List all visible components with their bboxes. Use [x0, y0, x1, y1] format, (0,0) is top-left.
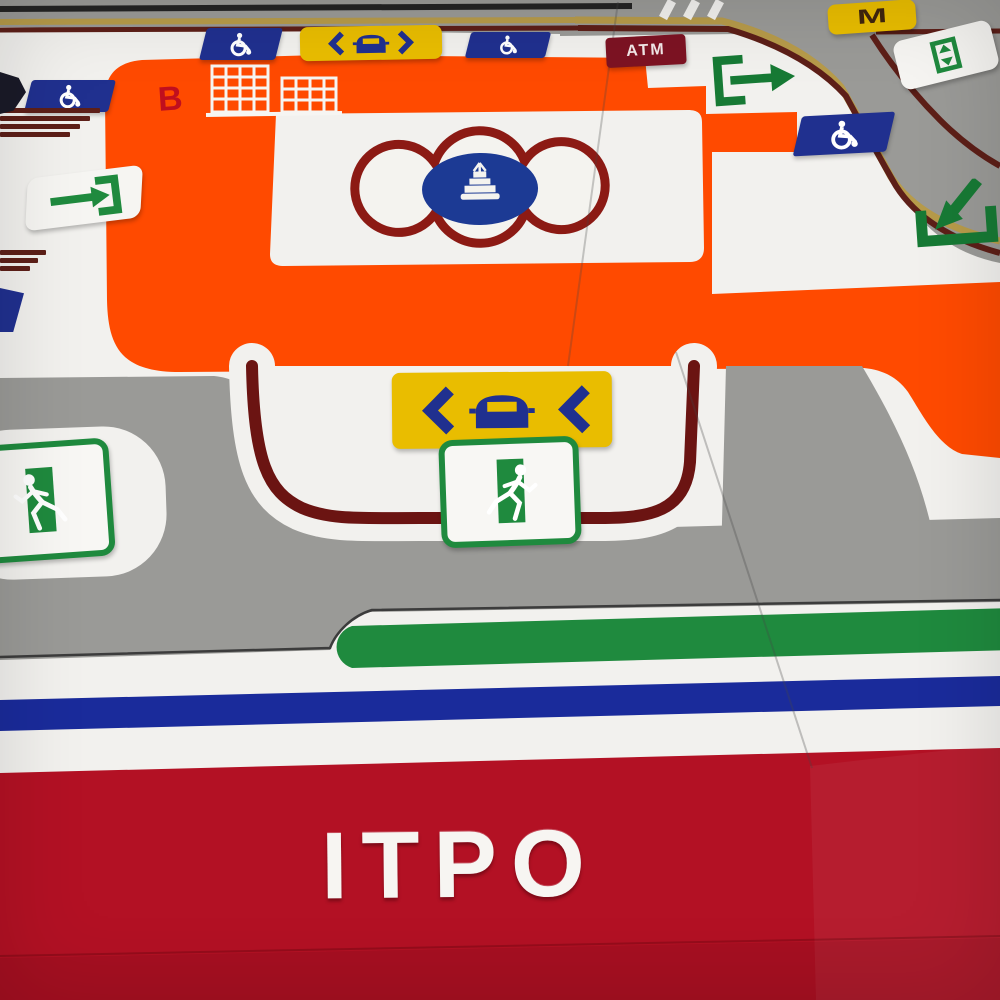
emergency-exit-icon — [457, 452, 564, 532]
lift-icon — [919, 32, 972, 78]
atm-sign: ATM — [605, 34, 686, 68]
lift-down-sign — [908, 177, 1000, 253]
buildings-icon — [206, 60, 346, 118]
metro-logo-sign: M — [827, 0, 917, 35]
block-letter: B — [157, 81, 184, 117]
platform-strip-green — [337, 608, 1000, 668]
car-icon — [351, 29, 391, 58]
tactile-map-board: ATM M — [0, 0, 1000, 1000]
exit-gate-sign — [698, 46, 807, 111]
chevron-left-icon — [548, 383, 592, 435]
chevron-right-icon — [395, 29, 421, 55]
exit-gate-icon — [698, 46, 807, 111]
entry-gate-icon — [32, 170, 137, 226]
lift-down-icon — [908, 177, 1000, 253]
wheelchair-icon — [211, 31, 270, 57]
wheelchair-icon — [37, 83, 103, 109]
car-both-ways-sign — [300, 25, 443, 61]
curb-line-maroon — [0, 28, 578, 30]
wheelchair-icon — [477, 34, 539, 55]
lane-line-yellow — [0, 20, 575, 22]
chevron-left-icon — [412, 384, 456, 436]
chevron-left-icon — [321, 30, 347, 56]
quatrefoil-landmark — [354, 129, 606, 246]
emergency-exit-sign-left — [0, 437, 116, 564]
stairs-icon-top — [0, 108, 100, 140]
stairs-icon-lower — [0, 250, 46, 274]
wheelchair-icon — [807, 116, 882, 152]
wheelchair-sign-2 — [465, 32, 551, 58]
road-center-line — [0, 6, 632, 9]
emergency-exit-sign-center — [438, 436, 582, 549]
wheelchair-sign-4 — [793, 112, 896, 157]
metro-logo-icon: M — [856, 4, 888, 30]
station-name-label: ITPO — [250, 816, 671, 915]
atm-label: ATM — [626, 41, 666, 61]
car-icon — [466, 382, 538, 439]
line-stripe-blue — [0, 676, 1000, 731]
emergency-exit-icon — [0, 457, 97, 544]
wheelchair-sign-1 — [199, 28, 283, 60]
